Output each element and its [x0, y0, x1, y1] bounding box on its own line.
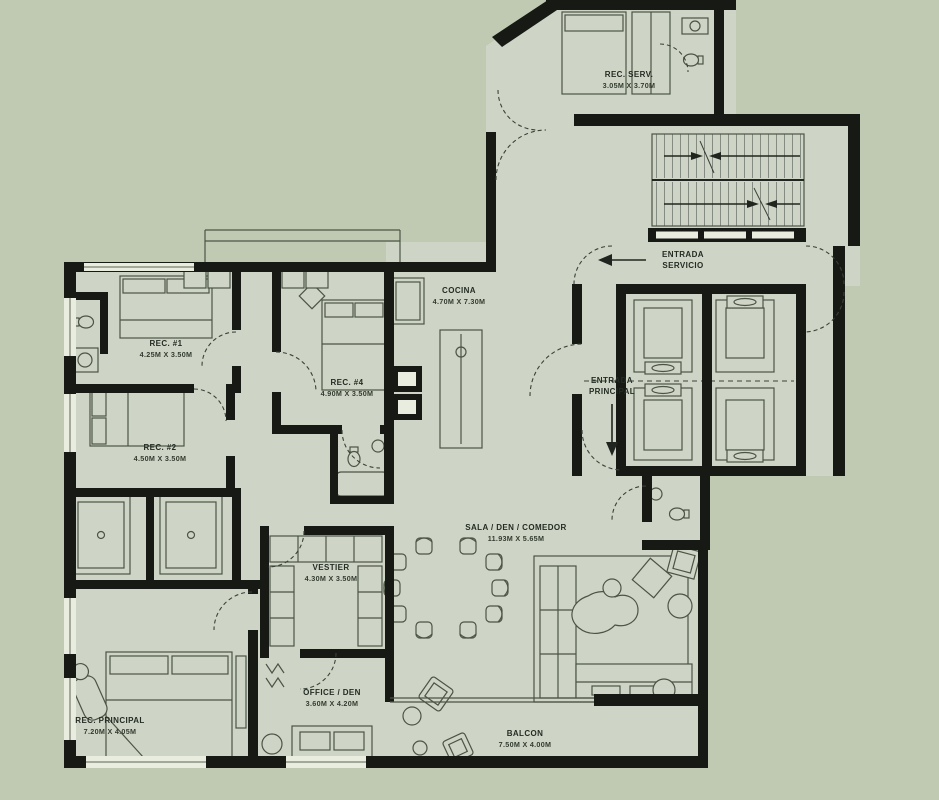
room-name: BALCON: [507, 729, 544, 738]
room-name: REC. #4: [330, 378, 363, 387]
entrance-label: SERVICIO: [662, 261, 703, 270]
room-name: VESTIER: [312, 563, 349, 572]
floor-plan-page: REC. SERV. 3.05M X 3.70M COCINA 4.70M X …: [0, 0, 939, 800]
entrance-label: PRINCIPAL: [589, 387, 635, 396]
entrance-label: ENTRADA: [662, 250, 704, 259]
side-table: [668, 594, 692, 618]
room-name: OFFICE / DEN: [303, 688, 361, 697]
room-dims: 4.30M X 3.50M: [305, 574, 358, 583]
room-dims: 3.05M X 3.70M: [603, 81, 656, 90]
room-dims: 7.20M X 4.05M: [84, 727, 137, 736]
room-name: REC. #1: [149, 339, 182, 348]
bed-rec2: [90, 388, 184, 446]
room-name: REC. PRINCIPAL: [75, 716, 144, 725]
room-dims: 4.70M X 7.30M: [433, 297, 486, 306]
staircase: [648, 134, 806, 242]
room-name: REC. SERV.: [605, 70, 653, 79]
terrace-ledge: [205, 230, 400, 262]
room-dims: 3.60M X 4.20M: [306, 699, 359, 708]
room-name: SALA / DEN / COMEDOR: [465, 523, 566, 532]
entrance-label: ENTRADA: [591, 376, 633, 385]
room-name: REC. #2: [143, 443, 176, 452]
room-dims: 7.50M X 4.00M: [499, 740, 552, 749]
room-dims: 11.93M X 5.65M: [488, 534, 545, 543]
floor-plan-canvas: REC. SERV. 3.05M X 3.70M COCINA 4.70M X …: [0, 0, 939, 800]
room-name: COCINA: [442, 286, 476, 295]
room-dims: 4.90M X 3.50M: [321, 389, 374, 398]
room-dims: 4.25M X 3.50M: [140, 350, 193, 359]
room-dims: 4.50M X 3.50M: [134, 454, 187, 463]
